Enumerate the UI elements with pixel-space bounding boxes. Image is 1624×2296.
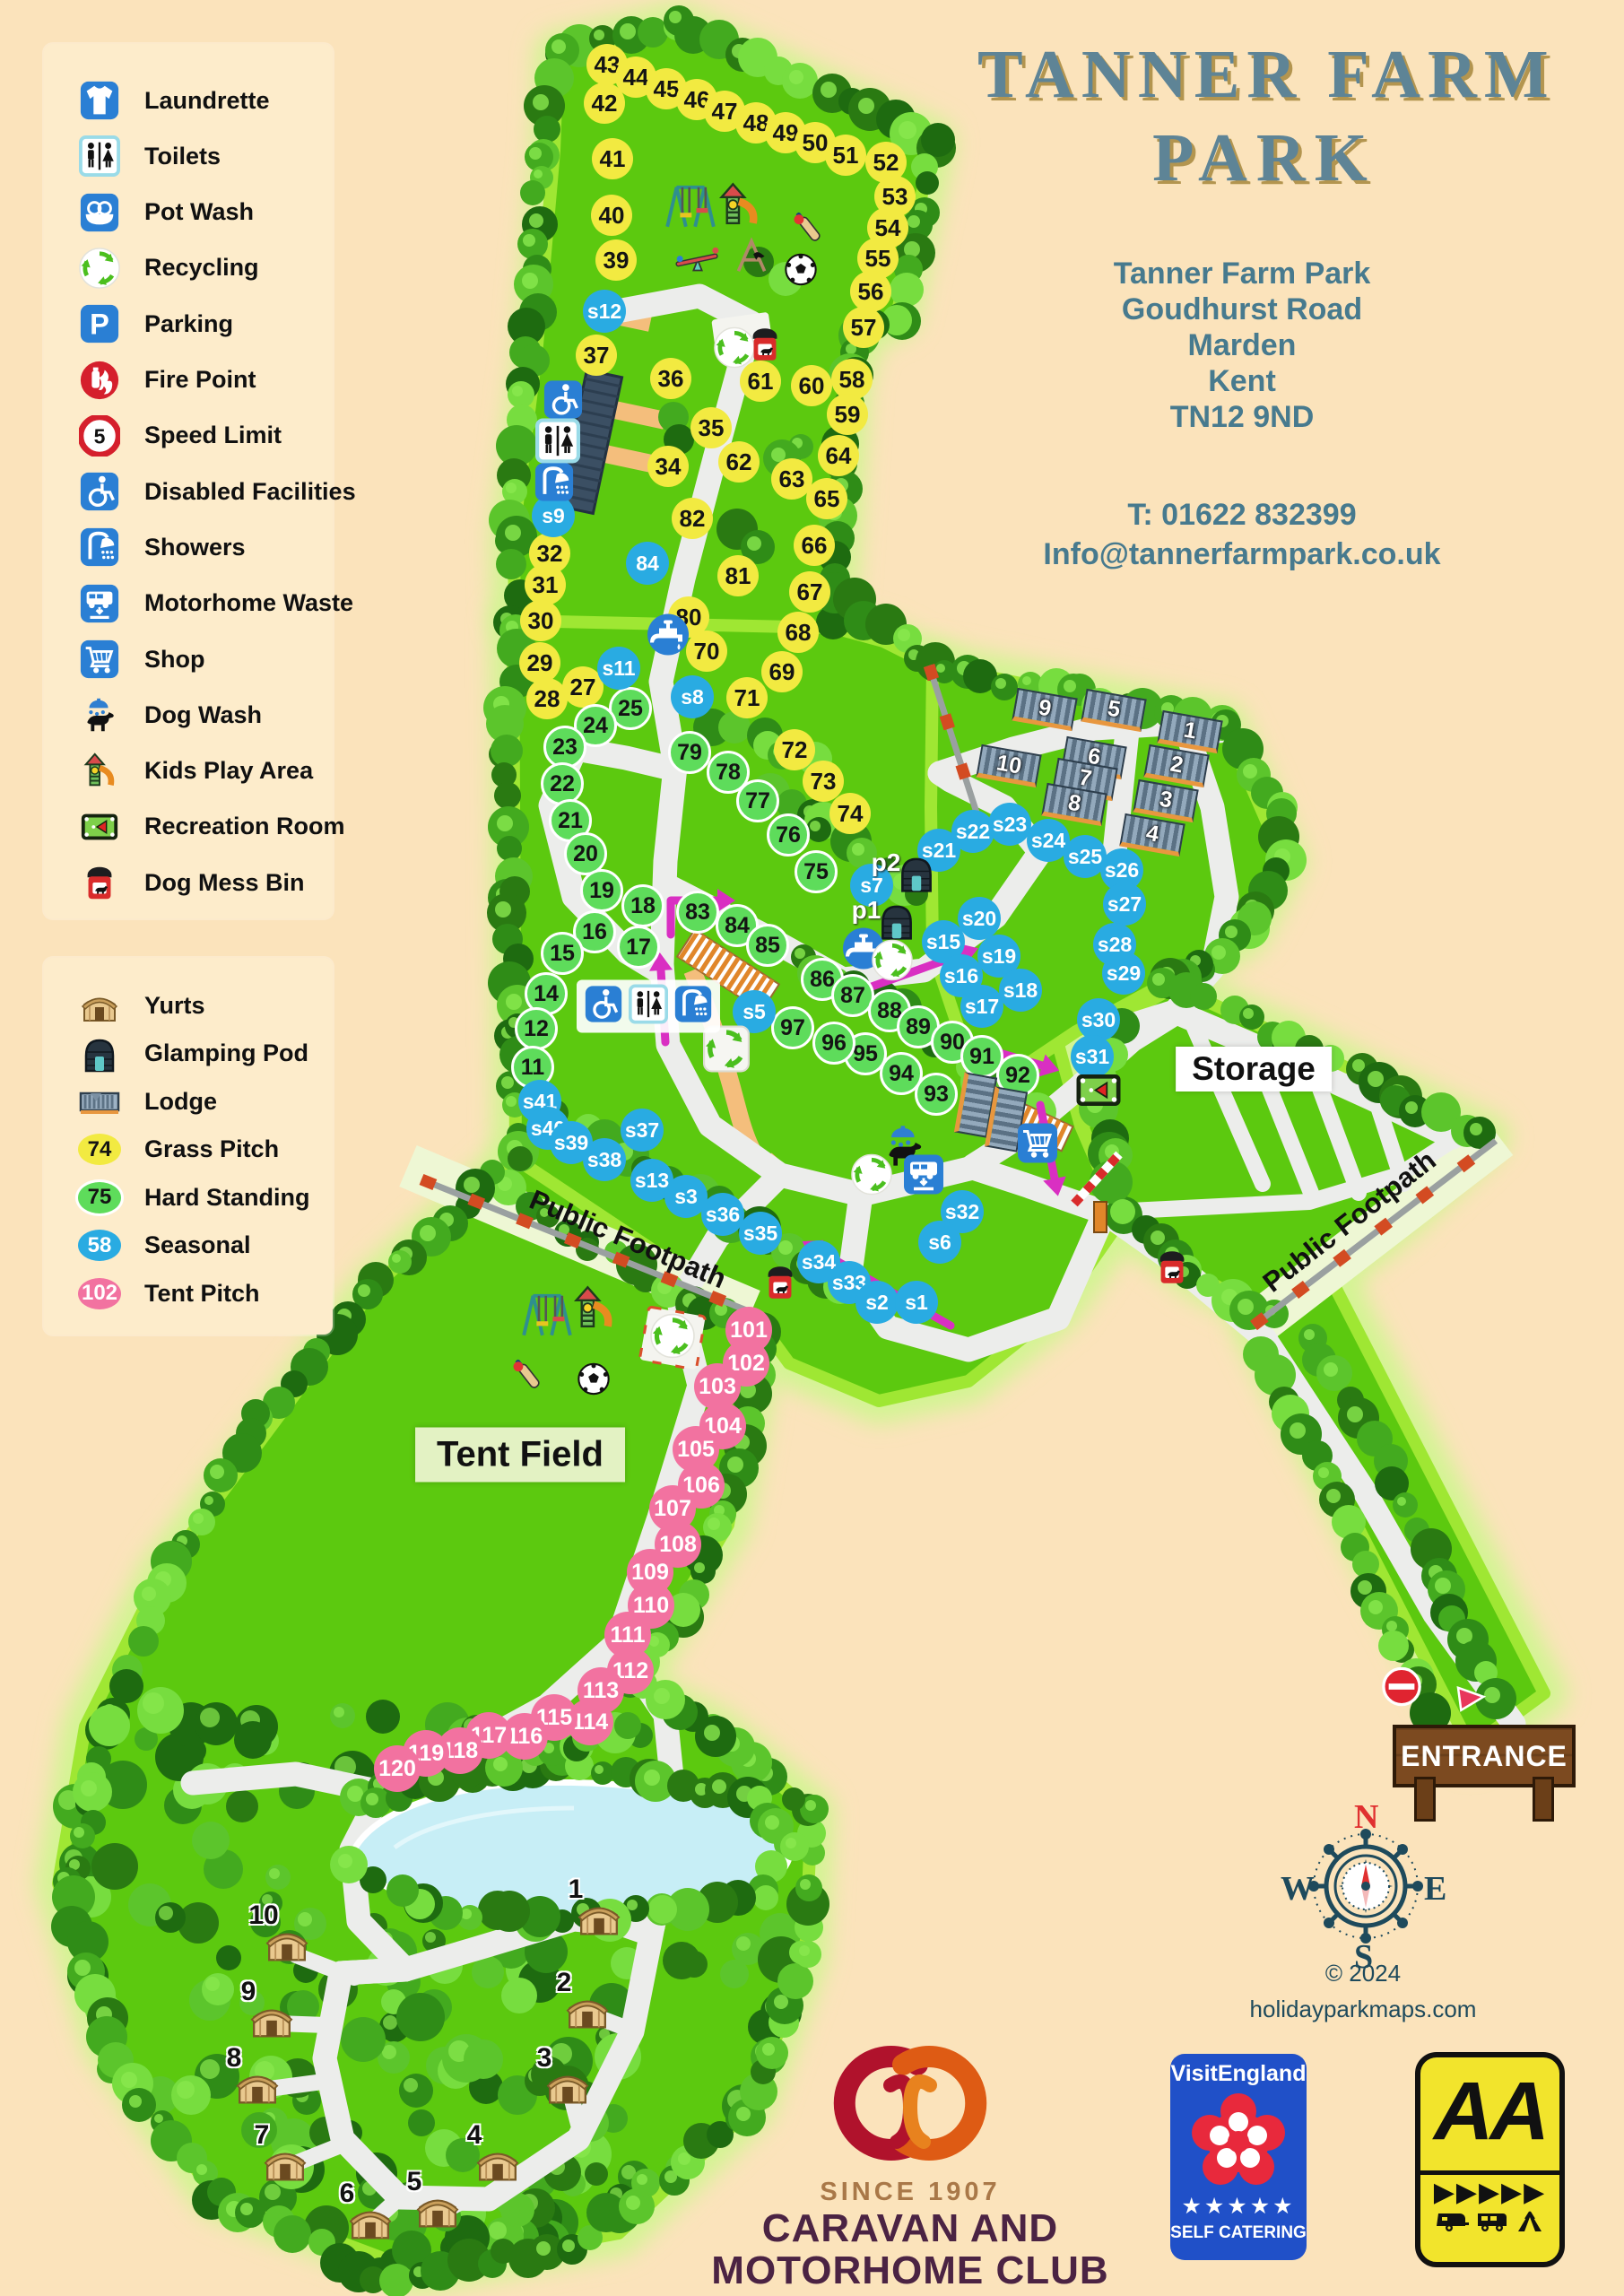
legend-item-motorhome-waste: Motorhome Waste	[78, 581, 353, 626]
pod-label-p2: p2	[872, 848, 901, 877]
park-phone: T: 01622 832399	[1009, 495, 1475, 535]
pitch-grass-69: 69	[761, 651, 803, 692]
legend-item-laundrette: Laundrette	[78, 78, 270, 123]
legend-item-yurts: Yurts	[78, 983, 205, 1028]
shower-icon	[673, 985, 713, 1029]
tudor-rose-icon	[1180, 2090, 1297, 2197]
legend-item-label: Recreation Room	[144, 813, 345, 840]
dog-mess-bin-icon	[760, 1262, 801, 1308]
pitch-hard-standing-77: 77	[736, 779, 779, 822]
yurt-number-4: 4	[467, 2120, 482, 2151]
pitch-grass-71: 71	[726, 677, 768, 718]
pitch-grass-62: 62	[718, 441, 760, 483]
shop-icon	[1016, 1122, 1059, 1170]
cmc-since: SINCE 1907	[708, 2178, 1112, 2207]
compass-east: E	[1424, 1869, 1446, 1909]
legend-item-recreation-room: Recreation Room	[78, 804, 345, 849]
pitch-seasonal-s18: s18	[999, 969, 1042, 1012]
pitch-grass-59: 59	[827, 394, 868, 435]
visit-england-badge: VisitEngland ★★★★★ SELF CATERING	[1170, 2054, 1307, 2260]
legend-item-pot-wash: Pot Wash	[78, 190, 254, 235]
wheelchair-icon	[78, 471, 121, 512]
showers-icon	[534, 462, 575, 508]
cart-icon	[78, 639, 121, 680]
park-email: Info@tannerfarmpark.co.uk	[1009, 535, 1475, 574]
aa-pennants: ▶▶▶▶▶	[1420, 2177, 1559, 2208]
dogwash-icon	[78, 694, 121, 735]
pitch-seasonal-s17: s17	[960, 985, 1003, 1028]
legend-item-label: Disabled Facilities	[144, 478, 356, 506]
legend-item-tent-pitch: 102 Tent Pitch	[78, 1271, 260, 1316]
address-line: TN12 9ND	[1009, 399, 1475, 435]
pitch-grass-74: 74	[829, 793, 871, 834]
pitch-grass-30: 30	[520, 600, 561, 641]
entrance-sign-post	[1533, 1777, 1554, 1822]
wheelchair-icon	[584, 985, 623, 1029]
pitch-grass-35: 35	[690, 407, 732, 448]
entrance-arrow-icon	[1454, 1681, 1489, 1721]
pitch-seasonal-s27: s27	[1103, 883, 1146, 926]
recreation-room-icon	[1073, 1065, 1124, 1120]
pitch-hard-standing-15: 15	[541, 932, 584, 975]
toilets-icon	[78, 135, 121, 177]
legend-item-label: Recycling	[144, 254, 259, 282]
legend-item-parking: P Parking	[78, 301, 233, 346]
copyright-year: © 2024	[1246, 1955, 1480, 1991]
pitch-hard-standing-79: 79	[668, 731, 711, 774]
legend-item-label: Dog Wash	[144, 701, 262, 729]
yurt-number-6: 6	[340, 2179, 355, 2209]
visit-england-title: VisitEngland	[1170, 2061, 1307, 2087]
pitch-grass-51: 51	[825, 135, 866, 176]
no-entry-icon	[1381, 1666, 1422, 1712]
tent-field-label: Tent Field	[415, 1428, 625, 1483]
pitch-grass-36: 36	[650, 358, 691, 399]
mhwaste-icon	[78, 583, 121, 624]
legend-item-toilets: Toilets	[78, 134, 221, 178]
shirt-icon	[78, 80, 121, 121]
recroom-icon	[78, 806, 121, 848]
pitch-grass-67: 67	[789, 571, 830, 613]
legend-item-fire-point: Fire Point	[78, 358, 256, 403]
legend-item-label: Tent Pitch	[144, 1280, 260, 1308]
pitch-grass-41: 41	[592, 138, 633, 179]
legend-item-recycling: Recycling	[78, 246, 259, 291]
recycling-icon	[703, 1026, 750, 1077]
pitch-seasonal-s8: s8	[671, 675, 714, 718]
pitch-tent-120: 120	[374, 1745, 421, 1792]
park-title: TANNER FARM PARK	[977, 36, 1551, 197]
pitch-seasonal-s22: s22	[951, 810, 994, 853]
yurt-number-8: 8	[227, 2043, 242, 2074]
pitch-grass-42: 42	[584, 83, 625, 124]
cricket-bat-icon	[788, 206, 835, 257]
legend-item-label: Lodge	[144, 1088, 217, 1116]
park-contact: T: 01622 832399 Info@tannerfarmpark.co.u…	[1009, 495, 1475, 574]
pitch-seasonal-s6: s6	[918, 1221, 961, 1264]
address-line: Tanner Farm Park	[1009, 256, 1475, 291]
pitch-grass-28: 28	[526, 678, 568, 719]
legend-item-lodge: Lodge	[78, 1079, 217, 1124]
pitch-hard-standing-18: 18	[621, 884, 664, 927]
legend-item-showers: Showers	[78, 525, 246, 570]
legend-item-kids-play-area: Kids Play Area	[78, 749, 313, 794]
pitch-hard-standing-76: 76	[767, 813, 810, 857]
potwash-icon	[78, 192, 121, 233]
toilets-icon	[535, 419, 580, 468]
cricket-bat-icon	[508, 1353, 554, 1405]
legend-item-label: Dog Mess Bin	[144, 869, 305, 897]
svg-text:P: P	[90, 309, 109, 341]
aa-text: AA	[1420, 2057, 1559, 2165]
yurt-icon	[78, 984, 121, 1027]
pitch-seasonal-s37: s37	[621, 1109, 664, 1152]
dogbin-icon	[78, 862, 121, 903]
pitch-grass-39: 39	[595, 239, 637, 281]
dog-mess-bin-icon	[1151, 1247, 1193, 1292]
pitch-seasonal-s23: s23	[988, 803, 1031, 846]
pitch-grass-68: 68	[777, 612, 819, 653]
park-map-page: 4344454647484950515253545556574241403937…	[0, 0, 1624, 2296]
address-line: Marden	[1009, 327, 1475, 363]
yurt-number-10: 10	[248, 1900, 278, 1931]
pitch-seasonal-s36: s36	[701, 1193, 744, 1236]
climbing-frame-icon	[729, 232, 774, 282]
aa-vehicle-icons	[1420, 2208, 1559, 2235]
yurt-number-3: 3	[537, 2043, 552, 2074]
lodgeicon-icon	[78, 1080, 121, 1123]
pitch-hard-standing-22: 22	[541, 762, 584, 805]
legend-item-label: Kids Play Area	[144, 757, 313, 785]
legend-item-hard-standing: 75 Hard Standing	[78, 1175, 310, 1220]
park-title-line1: TANNER FARM	[977, 36, 1551, 114]
copyright: © 2024 holidayparkmaps.com	[1246, 1955, 1480, 2027]
kidsplay-icon	[78, 751, 121, 792]
pitch-grass-40: 40	[591, 195, 632, 236]
aa-badge: AA ▶▶▶▶▶	[1415, 2052, 1565, 2267]
recycle-icon	[78, 248, 121, 289]
play-tower-icon	[713, 180, 765, 237]
yurt-number-7: 7	[255, 2120, 270, 2151]
pitch-grass-66: 66	[794, 525, 835, 566]
pitch-grass-56: 56	[850, 271, 891, 312]
legend-item-label: Grass Pitch	[144, 1135, 279, 1163]
pitch-grass-34: 34	[647, 446, 689, 487]
parkP-icon: P	[78, 303, 121, 344]
pitch-hard-standing-17: 17	[617, 926, 660, 969]
yurt-number-1: 1	[569, 1874, 584, 1905]
compass-west: W	[1281, 1869, 1315, 1909]
pitch-seasonal-s38: s38	[583, 1138, 626, 1181]
legend-item-label: Motorhome Waste	[144, 589, 353, 617]
legend-item-label: Glamping Pod	[144, 1039, 308, 1067]
svg-text:5: 5	[94, 424, 106, 448]
central-facilities-sign	[577, 980, 720, 1033]
recycling-icon	[650, 1314, 695, 1363]
cmc-name-line2: MOTORHOME CLUB	[708, 2249, 1112, 2292]
pitch-grass-31: 31	[525, 564, 566, 605]
pitch-seasonal-s35: s35	[739, 1212, 782, 1255]
pitch-grass-29: 29	[519, 642, 560, 683]
yurt-number-2: 2	[557, 1968, 572, 1998]
pitch-seasonal-84: 84	[626, 542, 669, 585]
legend-item-dog-mess-bin: Dog Mess Bin	[78, 860, 305, 905]
pitch-hard-standing-12: 12	[515, 1007, 558, 1050]
pitch-grass-60: 60	[791, 365, 832, 406]
legend-item-grass-pitch: 74 Grass Pitch	[78, 1127, 279, 1172]
lodge-10: 10	[976, 744, 1041, 787]
motorhome-icon	[1476, 2210, 1508, 2233]
legend-item-label: Pot Wash	[144, 198, 254, 226]
compass-rose: N E S W	[1298, 1810, 1433, 1962]
swings-icon	[519, 1287, 575, 1347]
legend-facilities: Laundrette Toilets Pot Wash RecyclingP	[44, 44, 333, 918]
pitch-badge-icon: 102	[78, 1278, 121, 1309]
legend-item-label: Toilets	[144, 143, 221, 170]
pitch-seasonal-s12: s12	[583, 290, 626, 333]
pitch-hard-standing-75: 75	[795, 850, 838, 893]
tent-icon	[1516, 2210, 1543, 2233]
storage-area-label: Storage	[1176, 1047, 1332, 1091]
legend-item-label: Speed Limit	[144, 422, 282, 449]
pitch-grass-65: 65	[806, 478, 847, 519]
park-address: Tanner Farm ParkGoudhurst RoadMardenKent…	[1009, 256, 1475, 435]
legend-item-glamping-pod: Glamping Pod	[78, 1031, 308, 1076]
legend-item-disabled-facilities: Disabled Facilities	[78, 469, 356, 514]
speed5-icon: 5	[78, 415, 121, 457]
legend-item-speed-limit: 5 Speed Limit	[78, 413, 282, 458]
legend-item-label: Laundrette	[144, 87, 270, 115]
lodge-5: 5	[1081, 689, 1146, 732]
legend-item-label: Fire Point	[144, 366, 256, 394]
pitch-seasonal-s29: s29	[1102, 952, 1145, 995]
legend-item-label: Yurts	[144, 992, 205, 1020]
dog-mess-bin-icon	[744, 324, 786, 370]
recycling-icon	[872, 940, 913, 986]
cmc-name-line1: CARAVAN AND	[708, 2207, 1112, 2249]
pitch-hard-standing-83: 83	[676, 891, 719, 934]
copyright-site: holidayparkmaps.com	[1246, 1991, 1480, 2027]
pitch-grass-57: 57	[843, 307, 884, 348]
pitch-grass-81: 81	[717, 555, 759, 596]
legend-item-label: Hard Standing	[144, 1184, 310, 1212]
legend-item-seasonal: 58 Seasonal	[78, 1223, 251, 1268]
seesaw-icon	[673, 233, 723, 288]
park-title-line2: PARK	[977, 119, 1551, 197]
recycling-icon	[851, 1154, 892, 1200]
legend-item-label: Parking	[144, 310, 233, 338]
caravan-motorhome-club-logo: SINCE 1907 CARAVAN AND MOTORHOME CLUB	[708, 2036, 1112, 2292]
legend-item-shop: Shop	[78, 637, 205, 682]
yurt-number-9: 9	[241, 1977, 256, 2007]
pitch-seasonal-s11: s11	[597, 647, 640, 690]
shower-icon	[78, 526, 121, 568]
lodge-9: 9	[1012, 688, 1077, 731]
pitch-badge-icon: 75	[78, 1182, 121, 1213]
yurt-number-5: 5	[407, 2167, 422, 2197]
legend-pitch-types: Yurts Glamping Pod Lodge74 Grass Pitch75…	[44, 958, 333, 1335]
aa-divider	[1420, 2170, 1559, 2175]
entrance-sign: ENTRANCE	[1393, 1725, 1576, 1787]
cmc-logo-icon	[812, 2036, 1009, 2170]
toilets-icon	[629, 985, 668, 1029]
motorhome-waste-icon	[902, 1153, 945, 1201]
football-icon	[576, 1361, 612, 1402]
fire-icon	[78, 360, 121, 401]
address-line: Goudhurst Road	[1009, 291, 1475, 327]
pitch-seasonal-s1: s1	[895, 1281, 938, 1324]
legend-item-label: Seasonal	[144, 1231, 251, 1259]
pitch-hard-standing-19: 19	[580, 869, 623, 912]
pitch-hard-standing-96: 96	[812, 1022, 855, 1065]
pitch-badge-icon: 58	[78, 1230, 121, 1261]
water-tap-icon	[647, 613, 690, 661]
visit-england-subtitle: SELF CATERING	[1170, 2223, 1307, 2243]
pitch-seasonal-s2: s2	[855, 1281, 899, 1324]
legend-item-label: Showers	[144, 534, 246, 561]
pitch-grass-82: 82	[672, 498, 713, 539]
pitch-grass-72: 72	[774, 729, 815, 770]
pod-icon	[78, 1032, 121, 1075]
compass-north: N	[1354, 1797, 1378, 1837]
football-icon	[783, 252, 819, 292]
legend-item-label: Shop	[144, 646, 205, 674]
swings-icon	[663, 178, 718, 239]
pitch-seasonal-s20: s20	[958, 897, 1001, 940]
pitch-hard-standing-97: 97	[771, 1006, 814, 1049]
pitch-grass-64: 64	[818, 435, 859, 476]
pitch-grass-37: 37	[576, 335, 617, 376]
pod-label-p1: p1	[852, 896, 881, 925]
play-tower-icon	[568, 1283, 620, 1340]
legend-item-dog-wash: Dog Wash	[78, 692, 262, 737]
pitch-hard-standing-85: 85	[746, 924, 789, 967]
pitch-badge-icon: 74	[78, 1134, 121, 1165]
caravan-icon	[1437, 2210, 1469, 2233]
pitch-seasonal-s30: s30	[1077, 998, 1120, 1041]
address-line: Kent	[1009, 363, 1475, 399]
